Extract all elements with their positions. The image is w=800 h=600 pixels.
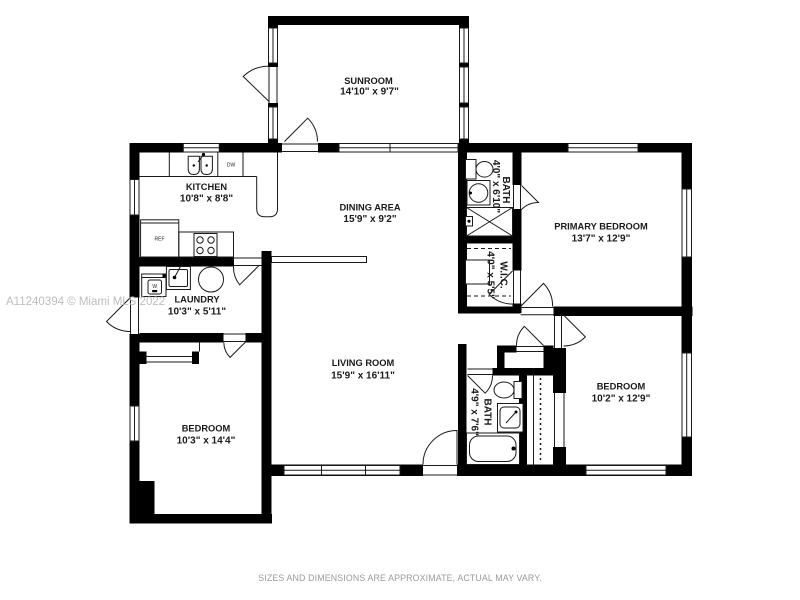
svg-text:A11240394 © Miami MLS 2022: A11240394 © Miami MLS 2022: [6, 296, 165, 308]
svg-text:SUNROOM: SUNROOM: [344, 76, 393, 86]
svg-text:10'3" x 5'11": 10'3" x 5'11": [168, 307, 226, 318]
svg-text:14'10" x 9'7": 14'10" x 9'7": [340, 87, 399, 98]
svg-text:DW: DW: [227, 163, 236, 169]
svg-text:10'3" x 14'4": 10'3" x 14'4": [177, 436, 236, 447]
svg-text:13'7" x 12'9": 13'7" x 12'9": [572, 234, 631, 245]
svg-text:LIVING ROOM: LIVING ROOM: [332, 358, 395, 368]
svg-text:10'8" x 8'8": 10'8" x 8'8": [180, 194, 233, 205]
svg-text:KITCHEN: KITCHEN: [186, 182, 228, 192]
svg-text:PRIMARY BEDROOM: PRIMARY BEDROOM: [554, 222, 648, 232]
svg-text:REF: REF: [155, 237, 165, 243]
svg-text:4'9" x 7'6": 4'9" x 7'6": [469, 388, 480, 436]
svg-text:BEDROOM: BEDROOM: [597, 382, 646, 392]
svg-text:BEDROOM: BEDROOM: [182, 424, 231, 434]
svg-text:LAUNDRY: LAUNDRY: [174, 295, 220, 305]
svg-text:15'9" x 9'2": 15'9" x 9'2": [343, 214, 396, 225]
svg-text:15'9" x 16'11": 15'9" x 16'11": [331, 371, 395, 382]
svg-text:W.I.C.: W.I.C.: [498, 261, 509, 288]
svg-text:W: W: [152, 284, 157, 290]
svg-text:10'2" x 12'9": 10'2" x 12'9": [592, 394, 651, 405]
svg-text:4'0" x 5'5": 4'0" x 5'5": [485, 251, 496, 299]
svg-text:DINING AREA: DINING AREA: [339, 203, 400, 213]
svg-text:SIZES AND DIMENSIONS ARE APPRO: SIZES AND DIMENSIONS ARE APPROXIMATE, AC…: [258, 573, 542, 583]
svg-text:4'0" x 6'10": 4'0" x 6'10": [490, 160, 501, 213]
svg-text:BATH: BATH: [482, 398, 493, 425]
